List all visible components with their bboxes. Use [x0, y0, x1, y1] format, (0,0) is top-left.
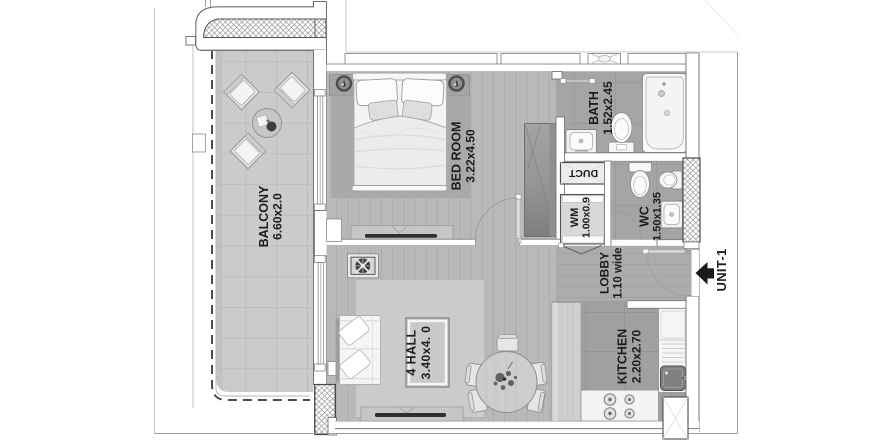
- svg-text:BALCONY: BALCONY: [257, 185, 271, 247]
- svg-text:BATH: BATH: [587, 91, 601, 125]
- svg-text:3.22x4.50: 3.22x4.50: [464, 129, 478, 183]
- svg-text:3.40x4. 0: 3.40x4. 0: [419, 326, 433, 380]
- svg-text:WC: WC: [638, 206, 652, 227]
- svg-text:1.10 wide: 1.10 wide: [613, 247, 625, 298]
- svg-text:1.52x2.45: 1.52x2.45: [601, 81, 615, 135]
- svg-text:LOBBY: LOBBY: [598, 252, 612, 294]
- svg-text:KITCHEN: KITCHEN: [616, 329, 630, 385]
- svg-text:DUCT: DUCT: [568, 167, 598, 179]
- svg-text:1.00x0.9: 1.00x0.9: [581, 197, 593, 238]
- svg-text:4 HALL: 4 HALL: [405, 329, 419, 375]
- svg-text:6.60x2.0: 6.60x2.0: [271, 193, 285, 240]
- svg-text:1.50x1.35: 1.50x1.35: [652, 192, 664, 241]
- svg-text:WM: WM: [569, 208, 581, 228]
- svg-text:UNIT-1: UNIT-1: [714, 249, 729, 292]
- svg-text:2.20x2.70: 2.20x2.70: [630, 329, 644, 383]
- svg-text:BED ROOM: BED ROOM: [450, 122, 464, 191]
